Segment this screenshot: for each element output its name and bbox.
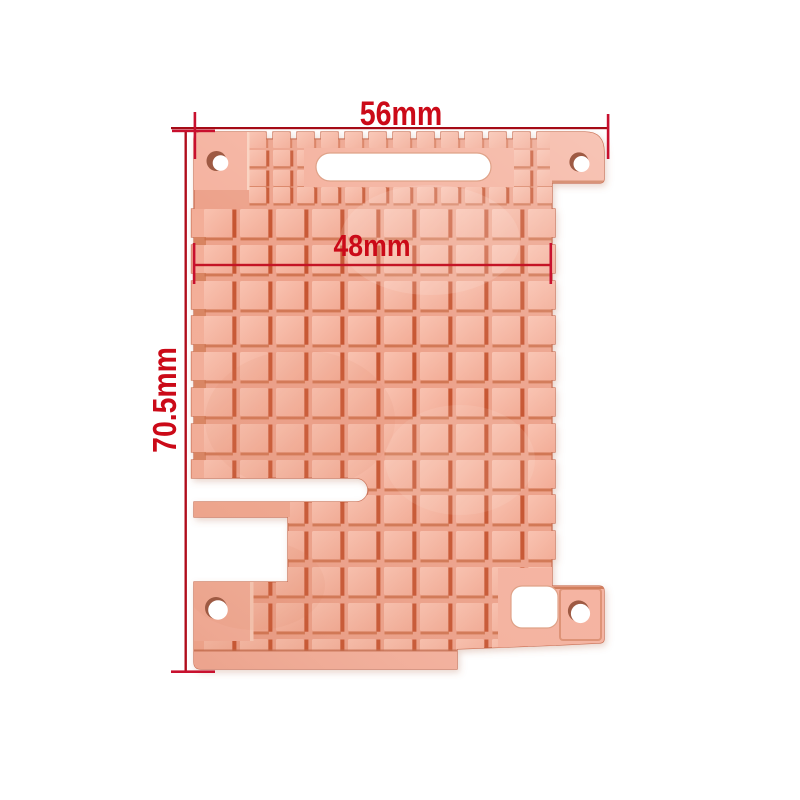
- svg-text:70.5mm: 70.5mm: [146, 347, 184, 453]
- svg-text:48mm: 48mm: [333, 229, 410, 263]
- svg-text:56mm: 56mm: [360, 95, 443, 133]
